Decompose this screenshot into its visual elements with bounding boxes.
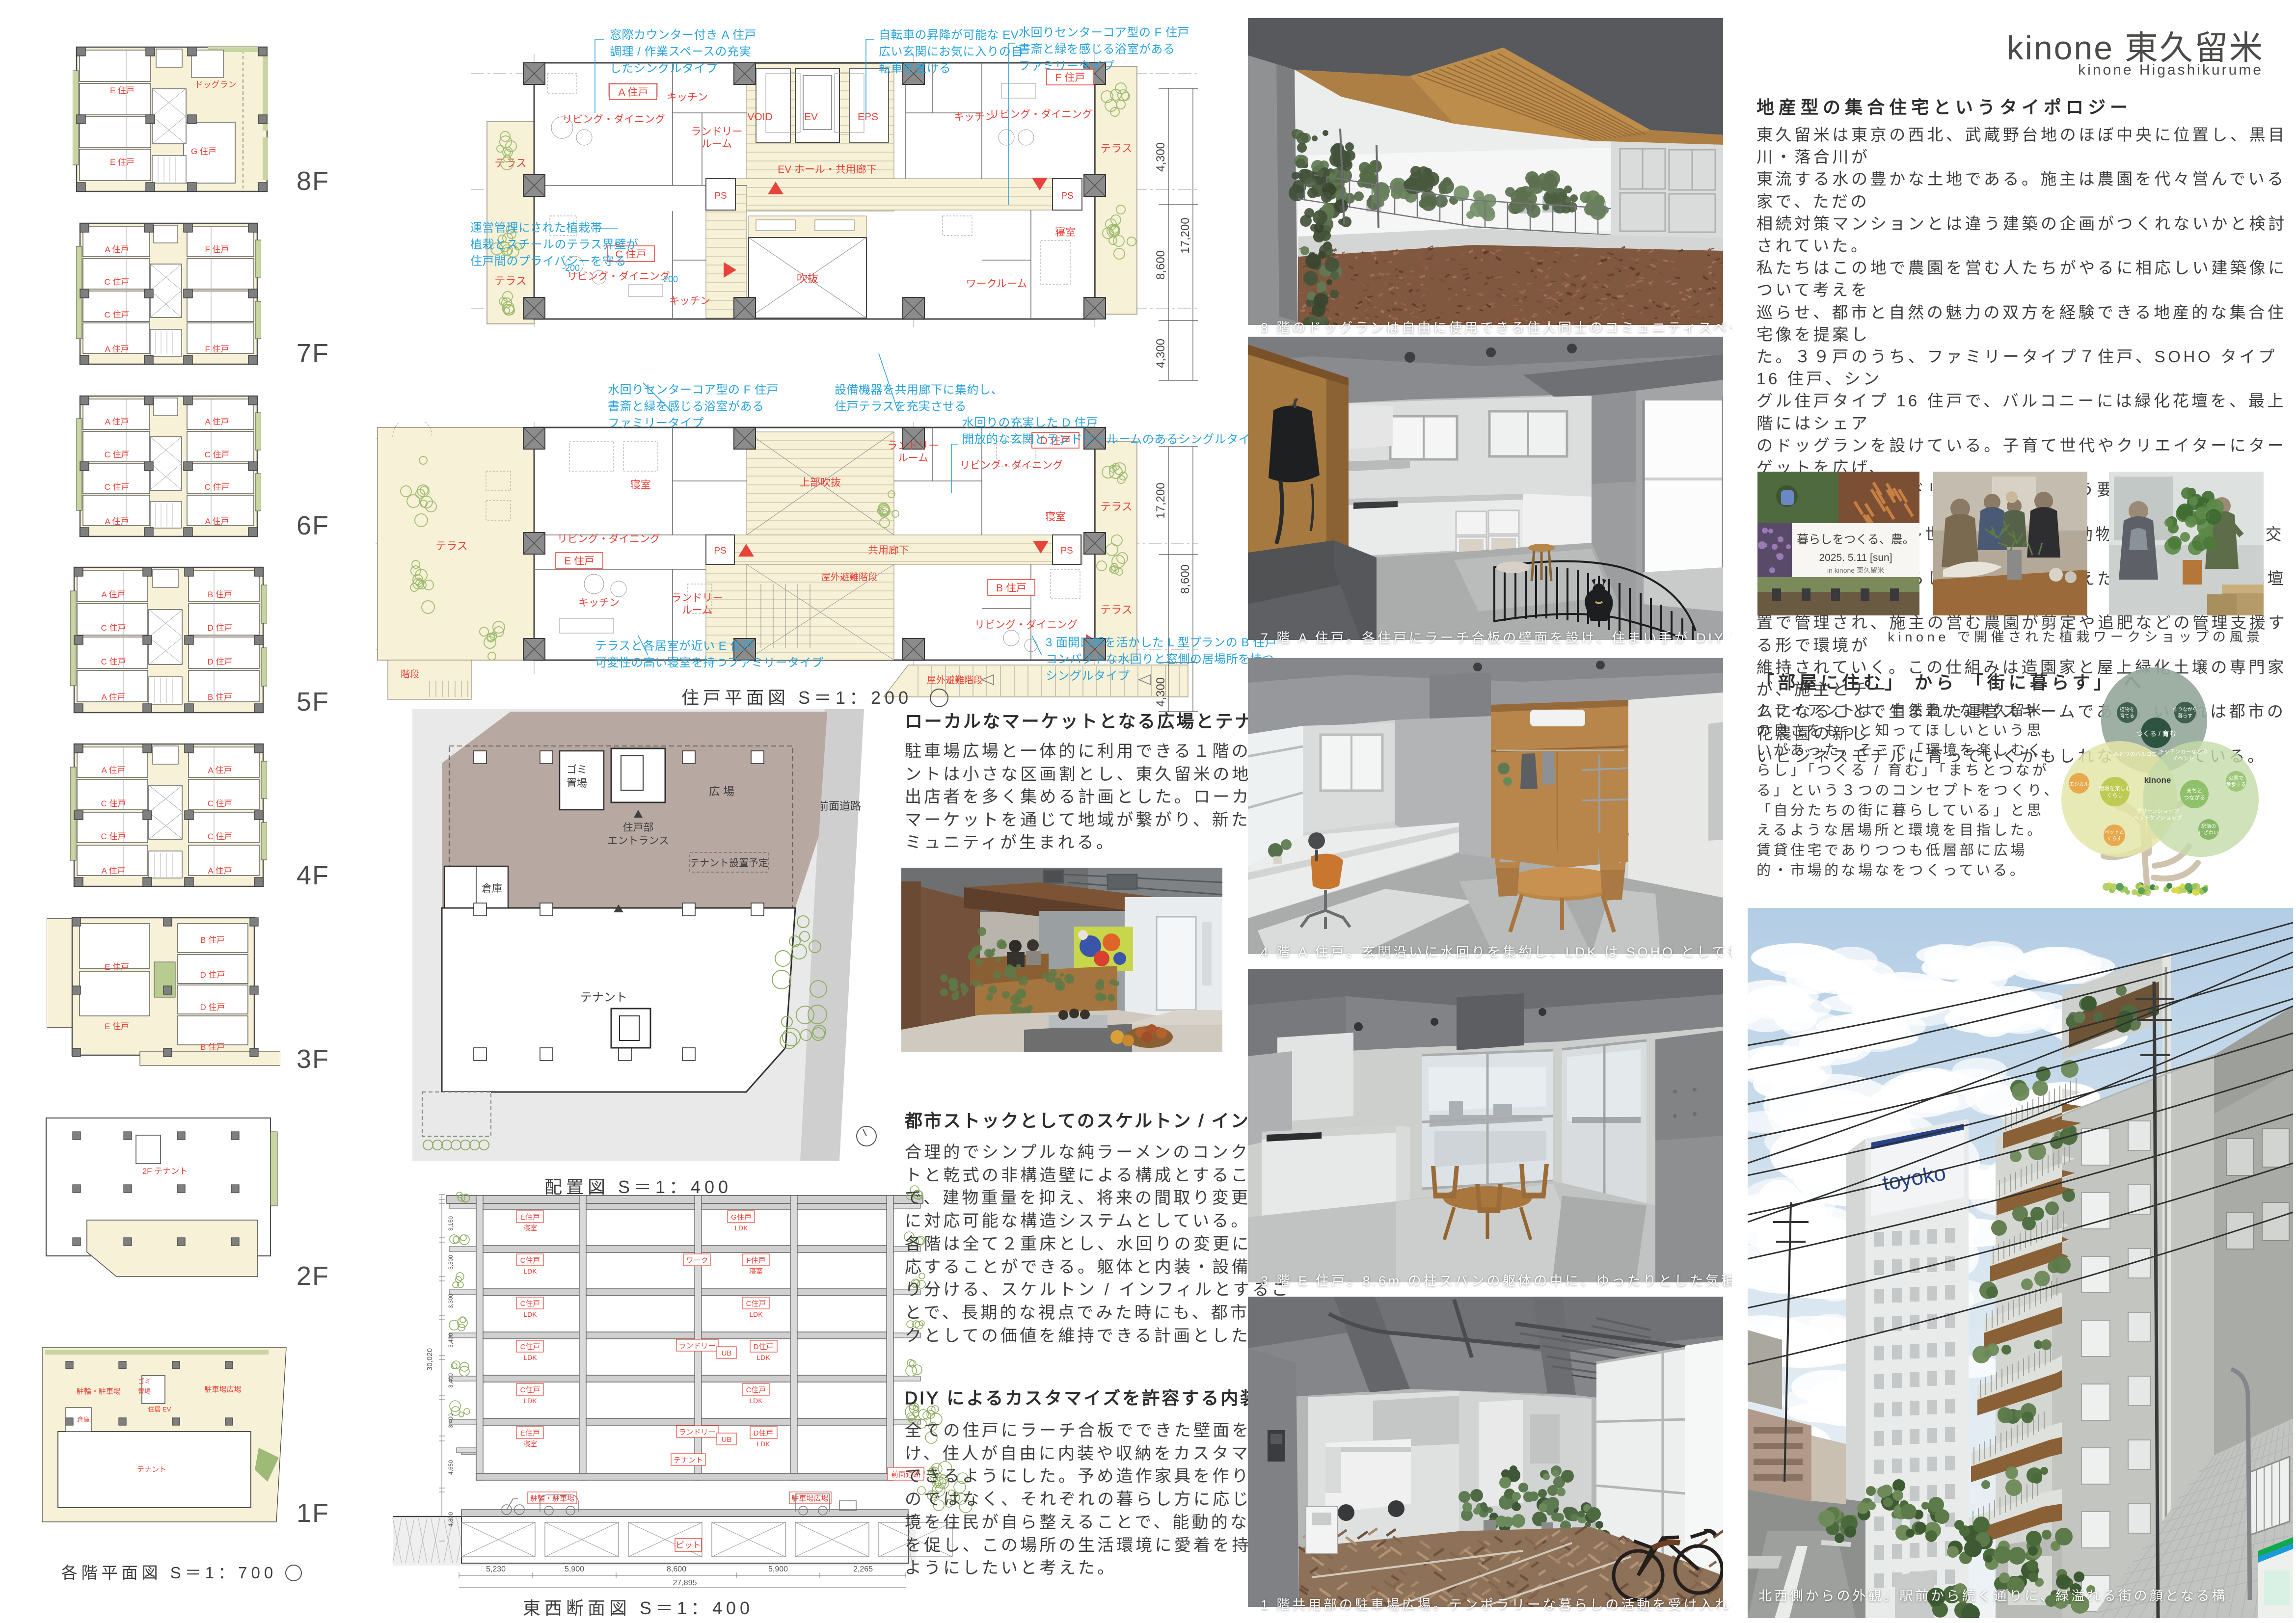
- svg-text:暮らしをつくる、農。: 暮らしをつくる、農。: [1797, 533, 1915, 546]
- svg-text:E住戸: E住戸: [520, 1213, 540, 1222]
- svg-text:30,020: 30,020: [426, 1348, 434, 1371]
- svg-text:くらし: くらし: [2107, 792, 2123, 798]
- svg-text:つながる: つながる: [2184, 794, 2205, 801]
- svg-text:A 住戸: A 住戸: [101, 866, 125, 876]
- svg-text:育てる: 育てる: [2120, 713, 2134, 719]
- svg-text:8,600: 8,600: [667, 1565, 686, 1573]
- svg-text:グリーンショップ: グリーンショップ: [2136, 807, 2179, 814]
- svg-text:寝室: 寝室: [749, 1267, 763, 1275]
- svg-text:E 住戸: E 住戸: [110, 86, 135, 95]
- svg-text:B 住戸: B 住戸: [200, 1042, 225, 1052]
- svg-text:UB: UB: [722, 1349, 732, 1357]
- svg-text:寝室: 寝室: [523, 1224, 537, 1232]
- svg-text:イベント: イベント: [2172, 756, 2194, 762]
- svg-text:LDK: LDK: [523, 1267, 537, 1275]
- svg-text:5,900: 5,900: [565, 1565, 584, 1573]
- svg-text:3,400: 3,400: [447, 1413, 454, 1428]
- svg-text:E 住戸: E 住戸: [110, 158, 135, 167]
- svg-text:C住戸: C住戸: [520, 1343, 540, 1351]
- svg-text:A 住戸: A 住戸: [208, 866, 232, 876]
- svg-text:C住戸: C住戸: [746, 1386, 766, 1394]
- svg-text:ドッグラン: ドッグラン: [195, 80, 237, 89]
- svg-text:みどりのバルコニー: みどりのバルコニー: [2114, 751, 2162, 757]
- svg-text:D住戸: D住戸: [754, 1429, 774, 1437]
- svg-text:LDK: LDK: [523, 1310, 537, 1318]
- svg-text:C 住戸: C 住戸: [205, 450, 230, 459]
- svg-text:LDK: LDK: [749, 1397, 763, 1405]
- svg-text:ピット: ピット: [676, 1541, 701, 1550]
- svg-text:C住戸: C住戸: [520, 1300, 540, 1308]
- svg-text:4,800: 4,800: [447, 1512, 454, 1527]
- svg-text:暮らす: 暮らす: [2178, 713, 2192, 719]
- svg-text:倉庫: 倉庫: [77, 1416, 90, 1423]
- svg-text:LDK: LDK: [523, 1397, 537, 1405]
- svg-text:テナント: テナント: [580, 991, 627, 1004]
- svg-text:A 住戸: A 住戸: [105, 345, 129, 354]
- svg-text:B 住戸: B 住戸: [208, 590, 232, 599]
- svg-text:くらす: くらす: [2107, 836, 2122, 842]
- svg-text:まちと: まちと: [2187, 788, 2203, 794]
- svg-text:A 住戸: A 住戸: [101, 590, 125, 599]
- svg-text:LDK: LDK: [523, 1354, 537, 1361]
- svg-text:A 住戸: A 住戸: [205, 517, 229, 526]
- svg-text:in kinone 東久留米: in kinone 東久留米: [1827, 566, 1884, 574]
- svg-text:駐車場広場: 駐車場広場: [204, 1385, 241, 1394]
- svg-text:2025. 5.11 [sun]: 2025. 5.11 [sun]: [1819, 552, 1892, 563]
- svg-text:作りながら: 作りながら: [2173, 706, 2197, 713]
- svg-text:LDK: LDK: [734, 1224, 748, 1232]
- svg-text:テナント設置予定: テナント設置予定: [690, 857, 768, 869]
- svg-text:E住戸: E住戸: [520, 1429, 540, 1437]
- svg-text:置場: 置場: [138, 1388, 151, 1395]
- svg-text:A 住戸: A 住戸: [205, 417, 229, 426]
- svg-text:階段: 階段: [401, 669, 419, 680]
- svg-text:テナント: テナント: [137, 1465, 166, 1474]
- svg-text:4,650: 4,650: [447, 1460, 454, 1475]
- svg-text:B 住戸: B 住戸: [208, 692, 232, 702]
- svg-text:C住戸: C住戸: [520, 1386, 540, 1394]
- svg-text:E 住戸: E 住戸: [105, 962, 129, 972]
- svg-text:駅前の: 駅前の: [2201, 823, 2216, 829]
- svg-text:C 住戸: C 住戸: [208, 832, 233, 841]
- svg-text:2,265: 2,265: [853, 1565, 873, 1573]
- svg-text:C 住戸: C 住戸: [101, 657, 126, 666]
- svg-text:住居 EV: 住居 EV: [148, 1406, 171, 1413]
- svg-text:3,300: 3,300: [447, 1255, 454, 1270]
- svg-text:C住戸: C住戸: [746, 1300, 766, 1308]
- svg-text:C住戸: C住戸: [520, 1256, 540, 1265]
- svg-text:D 住戸: D 住戸: [208, 657, 233, 666]
- svg-text:倉庫: 倉庫: [482, 883, 502, 894]
- svg-text:テナント: テナント: [674, 1456, 703, 1464]
- svg-text:つくる / 育む: つくる / 育む: [2136, 730, 2176, 738]
- svg-text:F住戸: F住戸: [746, 1256, 765, 1265]
- svg-text:5,900: 5,900: [768, 1565, 788, 1573]
- svg-text:公園で: 公園で: [2229, 775, 2243, 781]
- svg-text:D 住戸: D 住戸: [200, 1003, 225, 1012]
- svg-text:ランドリー: ランドリー: [678, 1342, 715, 1350]
- svg-text:C 住戸: C 住戸: [105, 310, 130, 319]
- svg-text:D 住戸: D 住戸: [208, 623, 233, 633]
- svg-text:駐輪・駐車場: 駐輪・駐車場: [77, 1387, 121, 1396]
- svg-text:C 住戸: C 住戸: [208, 799, 233, 808]
- svg-text:3,150: 3,150: [447, 1216, 454, 1231]
- svg-text:A 住戸: A 住戸: [105, 417, 129, 426]
- svg-text:ゴミ: ゴミ: [138, 1378, 151, 1385]
- svg-text:ペットと: ペットと: [2105, 829, 2124, 835]
- svg-text:にぎわい: にぎわい: [2199, 829, 2218, 836]
- svg-text:kinone: kinone: [2144, 775, 2171, 785]
- svg-text:置場: 置場: [567, 778, 587, 789]
- svg-text:G 住戸: G 住戸: [191, 147, 216, 156]
- svg-text:ランドリー: ランドリー: [678, 1428, 715, 1437]
- svg-text:A 住戸: A 住戸: [105, 517, 129, 526]
- svg-text:2F テナント: 2F テナント: [142, 1167, 188, 1176]
- svg-text:A 住戸: A 住戸: [101, 766, 125, 775]
- svg-text:散歩する: 散歩する: [2226, 781, 2246, 788]
- svg-text:27,895: 27,895: [673, 1579, 697, 1587]
- svg-text:3,300: 3,300: [447, 1294, 454, 1308]
- svg-text:C 住戸: C 住戸: [101, 799, 126, 808]
- svg-text:広 場: 広 場: [709, 785, 734, 798]
- svg-text:LDK: LDK: [756, 1440, 770, 1448]
- svg-text:C 住戸: C 住戸: [105, 450, 130, 459]
- svg-text:F 住戸: F 住戸: [205, 345, 229, 354]
- svg-text:環境を楽しむ: 環境を楽しむ: [2099, 785, 2131, 792]
- svg-text:LDK: LDK: [756, 1354, 770, 1361]
- svg-text:LDK: LDK: [749, 1310, 763, 1318]
- svg-text:前面道路: 前面道路: [818, 800, 861, 812]
- svg-text:A 住戸: A 住戸: [208, 766, 232, 775]
- svg-text:C 住戸: C 住戸: [105, 482, 130, 492]
- svg-text:5,230: 5,230: [486, 1565, 506, 1573]
- svg-text:駐車場広場: 駐車場広場: [791, 1494, 828, 1503]
- svg-text:駐輪・駐車場: 駐輪・駐車場: [530, 1494, 574, 1503]
- svg-text:F 住戸: F 住戸: [205, 245, 229, 254]
- svg-text:寝室: 寝室: [523, 1440, 537, 1448]
- svg-text:C 住戸: C 住戸: [105, 277, 130, 287]
- svg-text:エシカル: エシカル: [2069, 781, 2089, 787]
- svg-text:3,400: 3,400: [447, 1333, 454, 1348]
- svg-text:ワーク: ワーク: [686, 1256, 708, 1265]
- svg-text:D住戸: D住戸: [754, 1343, 774, 1351]
- svg-text:E 住戸: E 住戸: [105, 1022, 129, 1031]
- svg-text:B 住戸: B 住戸: [200, 935, 225, 945]
- svg-text:キッチンカーなどの: キッチンカーなどの: [2159, 748, 2208, 755]
- svg-text:C 住戸: C 住戸: [101, 623, 126, 633]
- svg-text:UB: UB: [722, 1436, 732, 1444]
- svg-text:ゴミ: ゴミ: [567, 764, 587, 775]
- svg-text:A 住戸: A 住戸: [101, 692, 125, 702]
- svg-text:G住戸: G住戸: [731, 1213, 752, 1222]
- svg-text:D 住戸: D 住戸: [200, 970, 225, 980]
- svg-text:植物を: 植物を: [2120, 706, 2134, 713]
- svg-text:エントランス: エントランス: [607, 835, 669, 847]
- svg-text:住戸部: 住戸部: [623, 822, 654, 833]
- svg-text:C 住戸: C 住戸: [101, 832, 126, 841]
- svg-text:A 住戸: A 住戸: [105, 245, 129, 254]
- svg-text:ペットケアショップ: ペットケアショップ: [2134, 815, 2182, 821]
- svg-text:C 住戸: C 住戸: [205, 482, 230, 492]
- svg-text:3,400: 3,400: [447, 1373, 454, 1388]
